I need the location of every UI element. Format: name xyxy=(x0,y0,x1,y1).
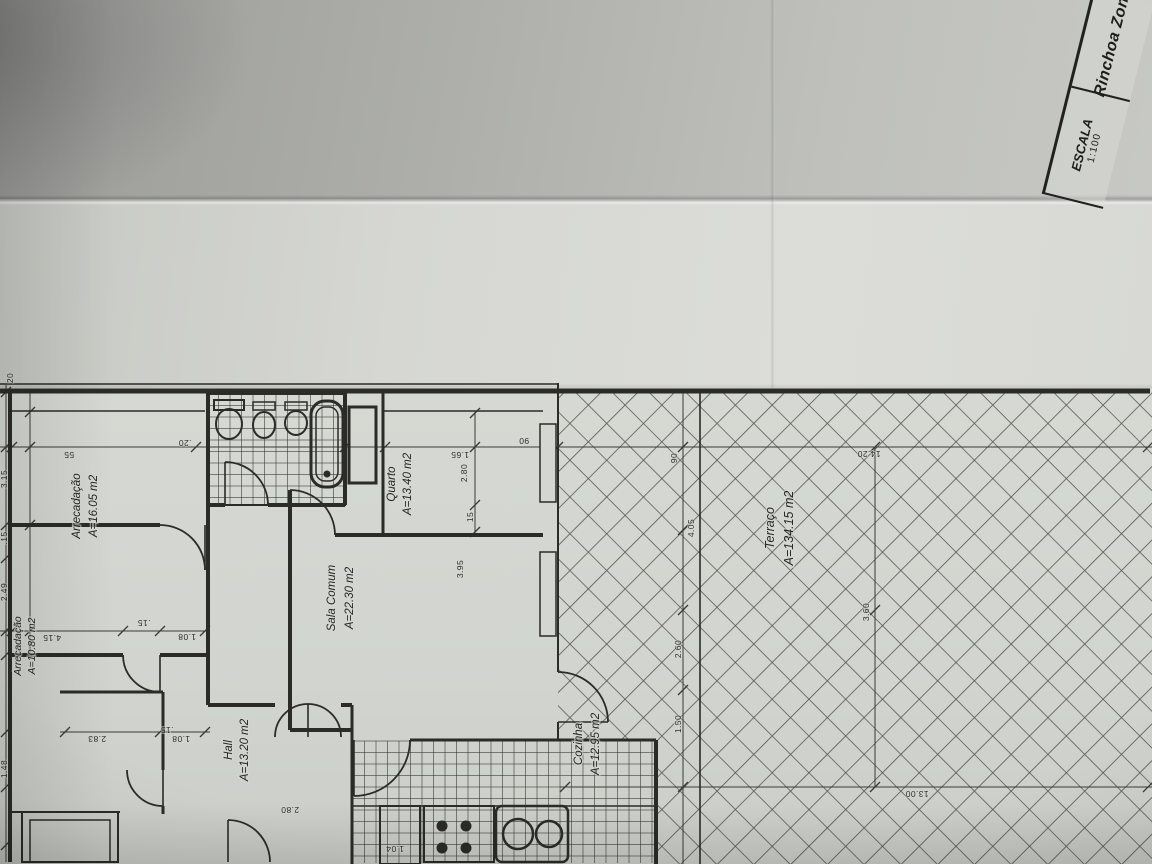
dimension-text: 3.60 xyxy=(861,603,871,621)
room-label-area: A=22.30 m2 xyxy=(344,566,356,630)
room-label-name: Terraço xyxy=(763,507,777,549)
dimension-text: 4.15 xyxy=(43,633,61,643)
dimension-text: 20 xyxy=(5,373,15,383)
dimension-text: 3.95 xyxy=(455,560,465,578)
fixtures-layer xyxy=(22,394,568,864)
dimension-text: 1.65 xyxy=(451,450,469,460)
dimension-text: 2.60 xyxy=(673,640,683,658)
dimension-text: 1.48 xyxy=(0,760,9,778)
dimension-text: 1.50 xyxy=(673,715,683,733)
dimension-text: 14.20 xyxy=(857,449,880,459)
dimension-text: 1.04 xyxy=(386,844,404,854)
door-swings-layer xyxy=(123,462,608,862)
dimension-text: 3.15 xyxy=(0,470,9,488)
room-label-area: A=12.95 m2 xyxy=(590,712,602,776)
room-label-area: A=13.20 m2 xyxy=(239,718,251,782)
room-label-area: A=134.15 m2 xyxy=(782,491,796,567)
photographed-floor-plan: ArrecadaçãoA=16.05 m2ArrecadaçãoA=10.80 … xyxy=(0,0,1152,864)
room-label-name: Arrecadação xyxy=(12,616,24,677)
dimension-text: .15 xyxy=(137,618,150,628)
windows-layer xyxy=(540,424,556,636)
dimension-text: 2.83 xyxy=(88,734,106,744)
dimension-text: 90 xyxy=(519,436,529,446)
dimension-text: .15 xyxy=(0,531,9,544)
room-label-area: A=16.05 m2 xyxy=(88,474,100,538)
dimension-text: 2.80 xyxy=(459,464,469,482)
dimension-text: 1.08 xyxy=(172,734,190,744)
zone-name: Rinchoa Zona xyxy=(1091,0,1136,99)
dimension-text: 4.05 xyxy=(686,519,696,537)
dimension-text: 13.00 xyxy=(905,789,928,799)
room-label-name: Hall xyxy=(223,740,235,760)
dimension-text: 2.80 xyxy=(281,805,299,815)
dimension-text: .15 xyxy=(160,725,173,735)
dimension-text: 90 xyxy=(669,453,679,463)
room-label-name: Sala Comum xyxy=(326,564,338,631)
room-label-name: Arrecadação xyxy=(71,473,83,540)
dimension-text: 2.49 xyxy=(0,583,9,601)
dimension-text: .20 xyxy=(178,438,191,448)
dimension-text: 1.08 xyxy=(178,632,196,642)
dimension-text: 15 xyxy=(465,512,475,522)
room-label-area: A=10.80 m2 xyxy=(26,617,38,675)
room-label-name: Quarto xyxy=(386,466,398,502)
dimension-text: 55 xyxy=(64,450,74,460)
room-label-area: A=13.40 m2 xyxy=(402,452,414,516)
terrace-hatch-layer xyxy=(558,391,1152,864)
floor-plan-svg: ArrecadaçãoA=16.05 m2ArrecadaçãoA=10.80 … xyxy=(0,0,1152,864)
room-label-name: Cozinha xyxy=(573,723,585,765)
